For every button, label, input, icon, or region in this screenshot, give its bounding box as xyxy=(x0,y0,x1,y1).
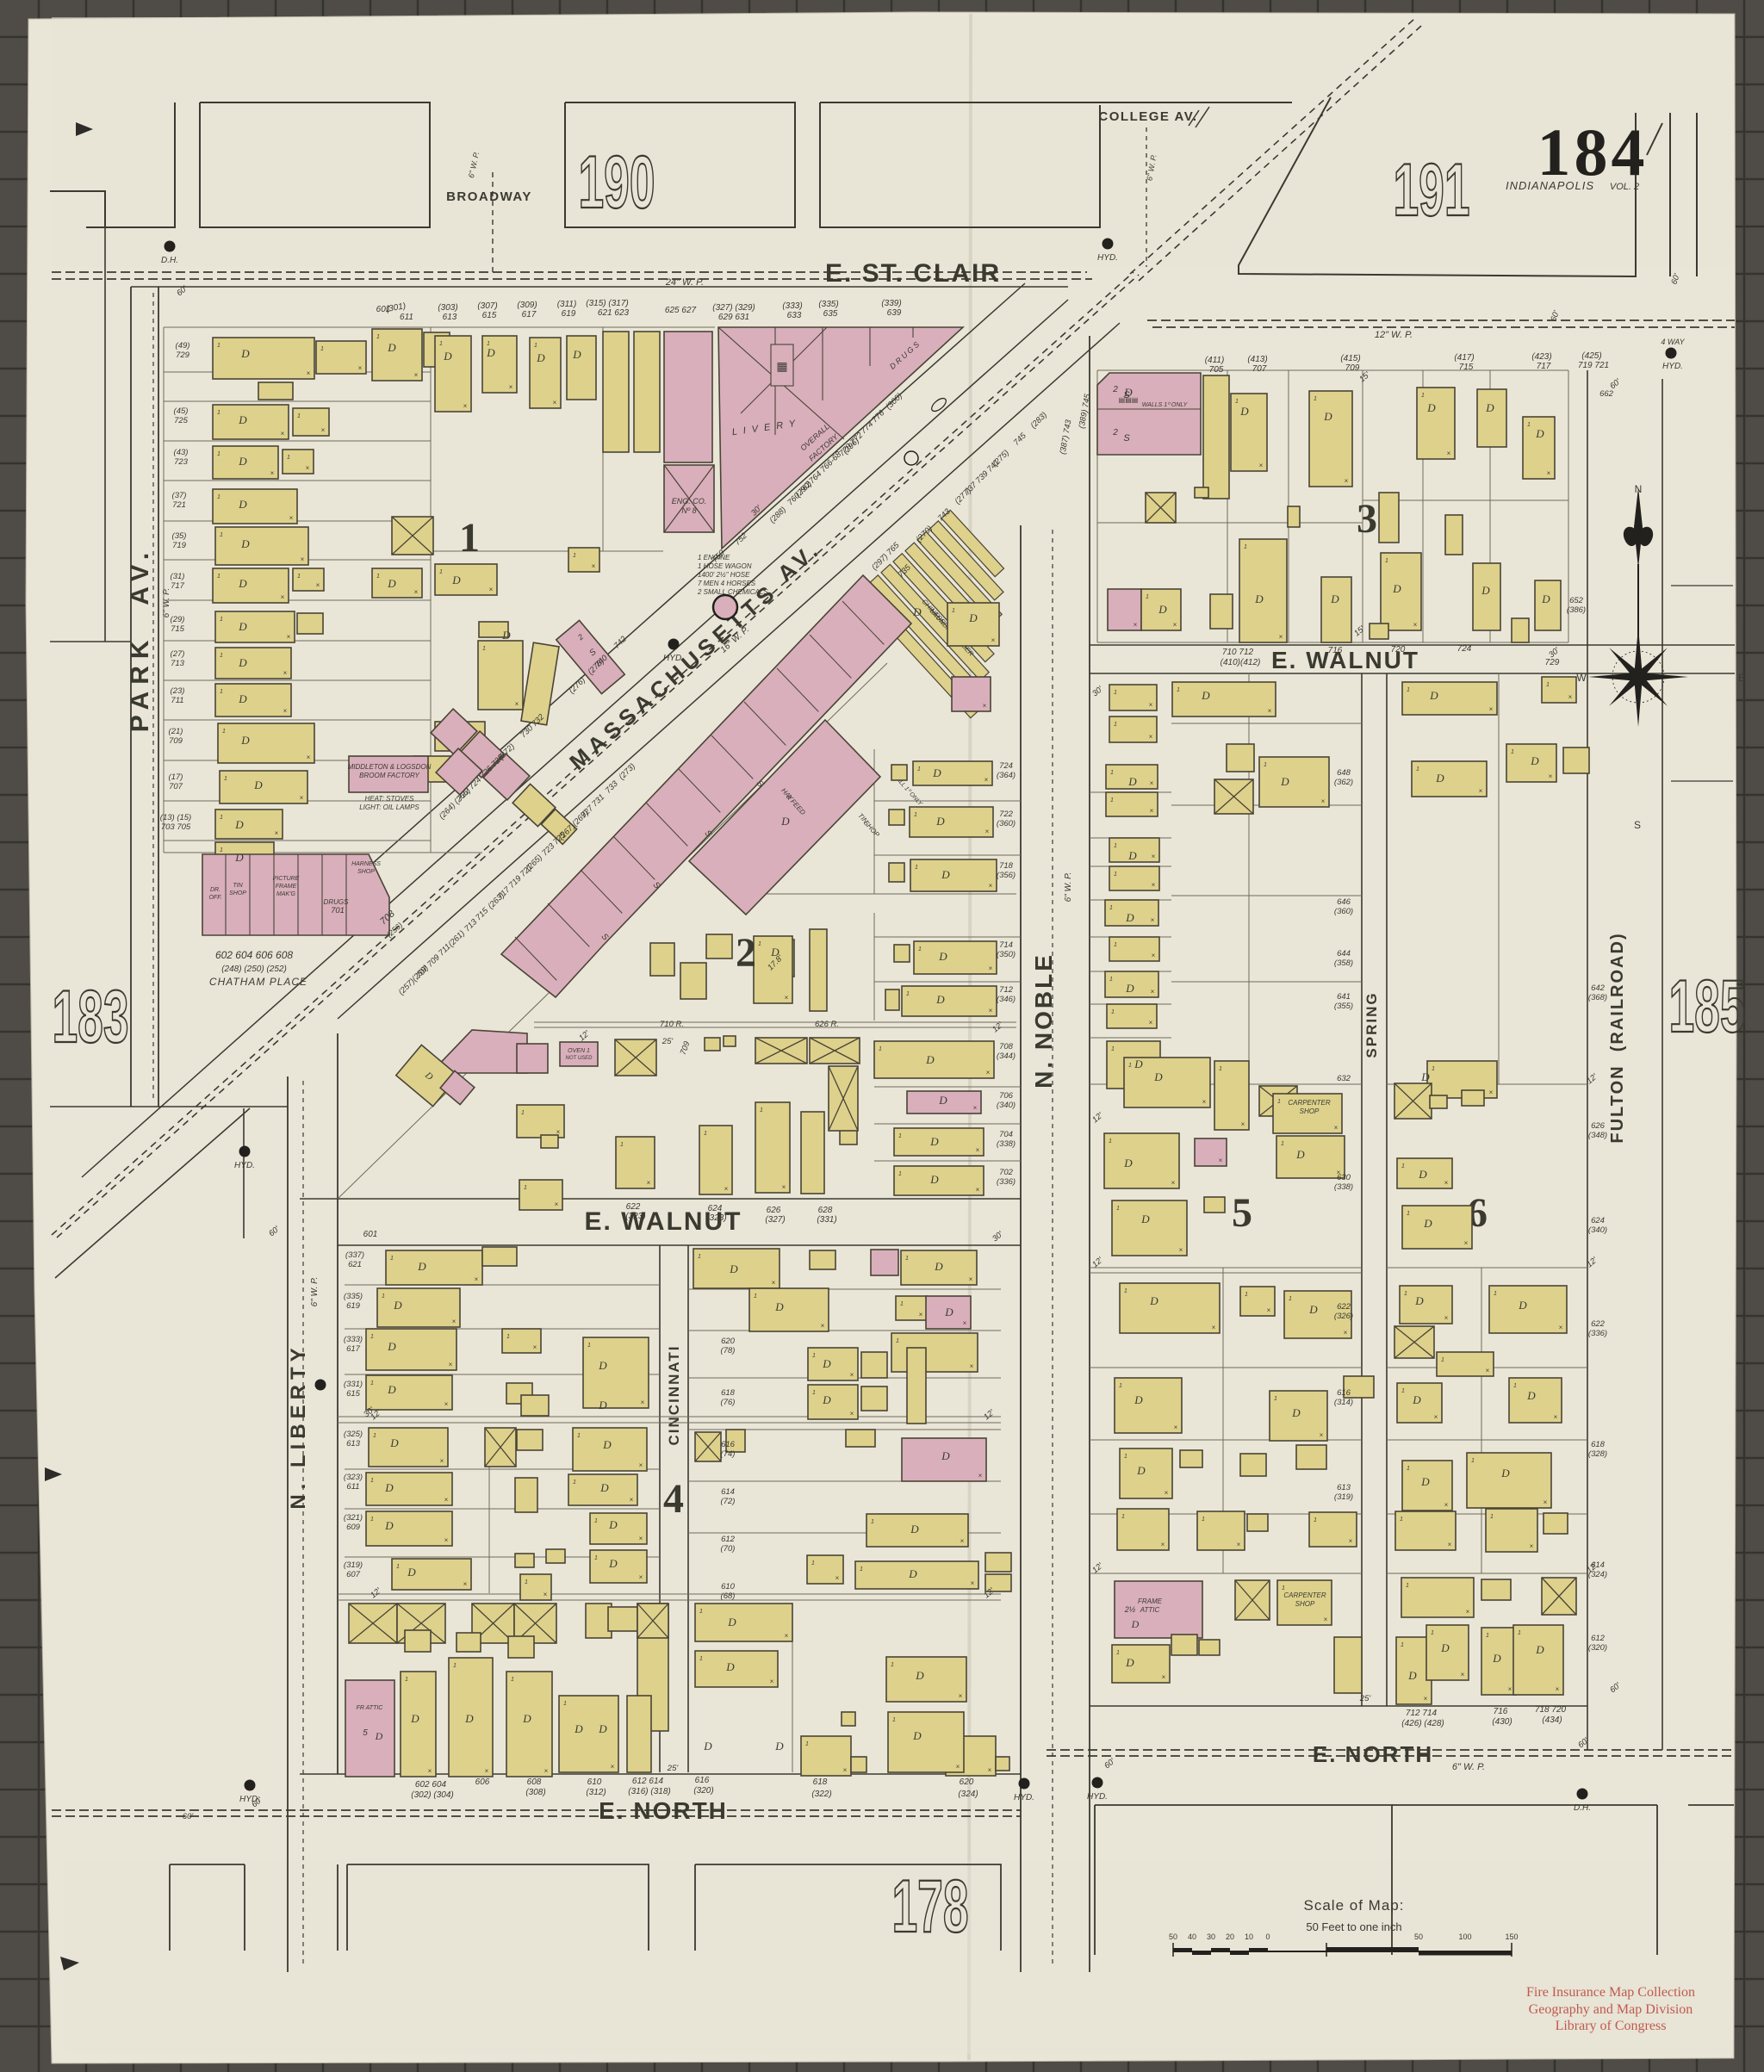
svg-text:HEAT: STOVES: HEAT: STOVES xyxy=(365,795,415,803)
svg-text:PARK AV.: PARK AV. xyxy=(126,546,154,732)
svg-text:D: D xyxy=(910,1523,919,1535)
svg-text:D: D xyxy=(238,692,247,705)
svg-text:25': 25' xyxy=(667,1764,680,1773)
svg-text:1: 1 xyxy=(952,608,955,614)
svg-text:D: D xyxy=(925,1053,935,1066)
svg-text:1: 1 xyxy=(220,617,223,623)
svg-text:(362): (362) xyxy=(1334,778,1353,787)
svg-text:1: 1 xyxy=(220,815,223,821)
svg-text:×: × xyxy=(976,1146,980,1154)
svg-text:×: × xyxy=(1547,469,1551,477)
svg-text:×: × xyxy=(1165,1489,1169,1497)
svg-text:D: D xyxy=(240,734,250,747)
svg-text:D: D xyxy=(912,605,922,618)
svg-text:(21): (21) xyxy=(169,727,183,736)
svg-text:725: 725 xyxy=(174,416,189,425)
svg-text:1: 1 xyxy=(222,729,226,735)
svg-text:×: × xyxy=(1161,1541,1165,1548)
svg-text:662: 662 xyxy=(1599,389,1614,399)
svg-text:717: 717 xyxy=(1537,362,1551,371)
svg-text:×: × xyxy=(1151,988,1155,996)
svg-text:703 705: 703 705 xyxy=(161,822,191,832)
svg-text:×: × xyxy=(485,1767,489,1775)
svg-text:1: 1 xyxy=(1406,1583,1409,1589)
svg-text:610: 610 xyxy=(587,1777,602,1787)
svg-text:1: 1 xyxy=(1527,422,1531,428)
svg-text:D: D xyxy=(464,1712,474,1725)
svg-text:2: 2 xyxy=(736,930,756,976)
svg-text:Fire Insurance Map Collection: Fire Insurance Map Collection xyxy=(1526,1985,1695,2000)
svg-text:25': 25' xyxy=(661,1037,674,1046)
svg-text:×: × xyxy=(963,1319,967,1327)
svg-text:1: 1 xyxy=(1109,977,1113,983)
svg-text:1: 1 xyxy=(1121,1514,1125,1520)
svg-text:×: × xyxy=(1173,621,1177,629)
svg-text:D: D xyxy=(501,629,511,642)
svg-text:VOL. 2: VOL. 2 xyxy=(1610,182,1639,192)
svg-text:×: × xyxy=(1549,772,1553,780)
svg-text:×: × xyxy=(1324,1616,1328,1623)
svg-text:(360): (360) xyxy=(997,819,1016,828)
svg-text:×: × xyxy=(989,882,993,890)
svg-text:×: × xyxy=(306,464,310,472)
svg-text:S: S xyxy=(1123,433,1130,444)
svg-text:(308): (308) xyxy=(525,1788,545,1797)
svg-text:622: 622 xyxy=(1591,1319,1606,1329)
svg-text:D: D xyxy=(1526,1389,1536,1402)
svg-text:D: D xyxy=(1500,1467,1510,1480)
svg-text:1: 1 xyxy=(1513,1383,1517,1389)
svg-text:×: × xyxy=(463,402,468,410)
svg-text:D: D xyxy=(935,993,945,1006)
svg-text:648: 648 xyxy=(1337,768,1351,778)
svg-text:×: × xyxy=(283,707,288,715)
svg-text:1: 1 xyxy=(915,865,918,871)
svg-text:611: 611 xyxy=(400,313,413,322)
svg-text:×: × xyxy=(1171,1179,1176,1187)
svg-text:1: 1 xyxy=(370,1334,374,1340)
svg-text:×: × xyxy=(1554,1413,1558,1421)
svg-text:D: D xyxy=(944,1306,953,1318)
svg-text:Nº 8: Nº 8 xyxy=(681,506,696,515)
svg-text:1: 1 xyxy=(405,1677,408,1683)
svg-text:D: D xyxy=(725,1660,735,1673)
svg-text:1: 1 xyxy=(805,1741,809,1747)
svg-text:HYD.: HYD. xyxy=(663,654,684,663)
svg-text:1: 1 xyxy=(1282,1585,1285,1591)
svg-text:1: 1 xyxy=(917,766,921,772)
svg-text:716: 716 xyxy=(1328,646,1343,655)
svg-text:×: × xyxy=(969,1275,973,1283)
svg-text:×: × xyxy=(1434,1413,1438,1421)
svg-text:1: 1 xyxy=(914,812,917,818)
svg-text:1: 1 xyxy=(563,1701,567,1707)
svg-text:1: 1 xyxy=(1407,1466,1410,1472)
svg-text:D: D xyxy=(1330,592,1339,605)
svg-text:1: 1 xyxy=(812,1390,816,1396)
svg-text:ENG. CO.: ENG. CO. xyxy=(672,497,707,506)
svg-text:1: 1 xyxy=(453,1663,457,1669)
svg-text:1: 1 xyxy=(594,1555,598,1561)
svg-text:712 714: 712 714 xyxy=(1406,1709,1438,1718)
svg-text:1: 1 xyxy=(220,653,223,659)
svg-text:D: D xyxy=(941,868,950,881)
svg-text:D: D xyxy=(417,1260,426,1273)
svg-text:×: × xyxy=(283,669,288,677)
svg-text:×: × xyxy=(358,364,363,372)
svg-text:1: 1 xyxy=(1401,1388,1405,1394)
svg-text:612 614: 612 614 xyxy=(632,1777,664,1786)
svg-text:D: D xyxy=(1131,1618,1140,1630)
svg-text:1: 1 xyxy=(1511,749,1514,755)
svg-text:×: × xyxy=(1162,1673,1166,1681)
svg-text:CHATHAM PLACE: CHATHAM PLACE xyxy=(209,976,307,988)
svg-text:710 R.: 710 R. xyxy=(660,1020,684,1029)
svg-text:1: 1 xyxy=(217,343,220,349)
svg-text:D: D xyxy=(1149,1294,1158,1307)
svg-text:1: 1 xyxy=(1385,558,1388,564)
svg-text:1: 1 xyxy=(1114,942,1117,948)
svg-text:(322): (322) xyxy=(811,1790,831,1799)
svg-text:D: D xyxy=(238,620,247,633)
svg-text:×: × xyxy=(1149,701,1153,709)
svg-text:(346): (346) xyxy=(997,995,1016,1004)
svg-text:×: × xyxy=(301,555,305,563)
svg-text:710 712: 710 712 xyxy=(1222,648,1254,657)
svg-text:707: 707 xyxy=(169,782,183,791)
svg-text:NOT USED: NOT USED xyxy=(565,1056,593,1061)
svg-text:1: 1 xyxy=(896,1338,899,1344)
svg-text:D: D xyxy=(389,1436,399,1449)
svg-text:D: D xyxy=(938,1094,947,1107)
svg-text:(386): (386) xyxy=(1567,605,1586,615)
svg-text:CARPENTER: CARPENTER xyxy=(1283,1591,1326,1599)
svg-text:1: 1 xyxy=(1202,1517,1205,1523)
svg-text:D: D xyxy=(522,1712,531,1725)
svg-text:1: 1 xyxy=(1546,682,1550,688)
svg-text:×: × xyxy=(641,1399,645,1406)
svg-text:×: × xyxy=(959,1692,963,1700)
svg-text:624: 624 xyxy=(1591,1216,1605,1225)
svg-text:D: D xyxy=(1295,1148,1305,1161)
svg-text:×: × xyxy=(281,593,285,601)
svg-text:WALLS 1⁰ ONLY: WALLS 1⁰ ONLY xyxy=(1142,401,1189,408)
svg-text:×: × xyxy=(1149,733,1153,741)
svg-text:D: D xyxy=(393,1299,402,1312)
svg-text:D: D xyxy=(384,1519,394,1532)
svg-text:1: 1 xyxy=(1114,690,1117,696)
svg-text:×: × xyxy=(1466,1608,1470,1616)
svg-text:619: 619 xyxy=(346,1301,361,1311)
svg-text:(415): (415) xyxy=(1340,354,1360,363)
svg-text:×: × xyxy=(772,1279,776,1287)
svg-text:191: 191 xyxy=(1394,149,1470,232)
svg-text:608: 608 xyxy=(527,1777,542,1787)
svg-text:D: D xyxy=(1134,1058,1143,1070)
svg-text:1: 1 xyxy=(760,1107,763,1114)
svg-text:D: D xyxy=(1440,1641,1450,1654)
svg-text:FRAME: FRAME xyxy=(276,884,297,890)
svg-text:D: D xyxy=(729,1262,738,1275)
svg-text:1: 1 xyxy=(871,1519,874,1525)
svg-text:50: 50 xyxy=(1169,1932,1177,1941)
svg-text:×: × xyxy=(1461,1671,1465,1678)
svg-text:(307): (307) xyxy=(477,301,497,311)
svg-text:×: × xyxy=(782,1183,786,1191)
svg-text:1: 1 xyxy=(1109,905,1113,911)
svg-text:100: 100 xyxy=(1458,1932,1471,1941)
svg-text:×: × xyxy=(1219,1157,1223,1164)
svg-text:1: 1 xyxy=(573,1480,576,1486)
svg-text:722: 722 xyxy=(999,810,1014,819)
svg-text:625 627: 625 627 xyxy=(665,306,697,315)
svg-text:×: × xyxy=(971,1579,975,1587)
svg-text:(410)(412): (410)(412) xyxy=(1221,658,1261,667)
svg-text:1: 1 xyxy=(217,574,220,580)
svg-text:×: × xyxy=(985,828,990,835)
svg-text:×: × xyxy=(1489,705,1494,713)
svg-text:(323): (323) xyxy=(344,1473,363,1482)
svg-text:D: D xyxy=(968,611,978,624)
svg-text:(333): (333) xyxy=(344,1335,363,1344)
svg-text:1: 1 xyxy=(879,1046,882,1052)
svg-text:E. ST. CLAIR: E. ST. CLAIR xyxy=(825,259,1001,288)
svg-text:D: D xyxy=(238,413,247,426)
svg-text:715: 715 xyxy=(1459,363,1474,372)
svg-text:(434): (434) xyxy=(1542,1715,1562,1725)
svg-text:1: 1 xyxy=(1111,1046,1115,1052)
svg-text:707: 707 xyxy=(1252,364,1267,374)
svg-text:D: D xyxy=(1412,1393,1421,1406)
svg-text:1: 1 xyxy=(1404,1291,1407,1297)
svg-text:×: × xyxy=(1267,1306,1271,1314)
svg-text:(328): (328) xyxy=(1588,1449,1607,1459)
svg-text:606: 606 xyxy=(475,1777,490,1787)
svg-text:60': 60' xyxy=(183,1812,195,1821)
svg-text:D: D xyxy=(387,1383,396,1396)
svg-text:615: 615 xyxy=(346,1389,361,1399)
svg-text:D: D xyxy=(780,815,790,828)
svg-text:×: × xyxy=(1151,916,1155,924)
svg-text:(315) (317): (315) (317) xyxy=(586,299,628,308)
svg-text:(78): (78) xyxy=(721,1346,736,1355)
svg-text:(368): (368) xyxy=(1588,993,1607,1002)
svg-text:×: × xyxy=(1259,462,1264,469)
svg-text:D: D xyxy=(238,498,247,511)
svg-text:D: D xyxy=(1420,1475,1430,1488)
svg-text:Library of Congress: Library of Congress xyxy=(1556,2019,1667,2033)
svg-text:D: D xyxy=(770,946,780,958)
svg-text:×: × xyxy=(592,562,596,570)
svg-text:(340): (340) xyxy=(1588,1225,1607,1235)
svg-text:1: 1 xyxy=(1494,1291,1497,1297)
svg-text:×: × xyxy=(275,829,279,837)
svg-text:708: 708 xyxy=(999,1042,1014,1052)
svg-text:1: 1 xyxy=(898,1133,902,1139)
svg-text:(360): (360) xyxy=(1334,907,1353,916)
svg-text:×: × xyxy=(307,369,311,377)
svg-text:1: 1 xyxy=(220,689,223,695)
svg-text:1: 1 xyxy=(320,346,324,352)
svg-text:(344): (344) xyxy=(997,1052,1016,1061)
svg-text:2: 2 xyxy=(1112,385,1118,394)
svg-text:607: 607 xyxy=(346,1570,361,1579)
svg-text:626 R.: 626 R. xyxy=(815,1020,839,1029)
svg-text:SHOP: SHOP xyxy=(357,869,375,875)
svg-text:×: × xyxy=(1447,450,1451,457)
svg-text:×: × xyxy=(1489,1089,1494,1096)
svg-text:178: 178 xyxy=(892,1865,969,1948)
svg-text:(327) (329): (327) (329) xyxy=(712,303,755,313)
svg-text:622: 622 xyxy=(626,1202,641,1212)
svg-text:×: × xyxy=(289,514,294,522)
svg-text:D: D xyxy=(234,851,244,864)
svg-text:×: × xyxy=(444,1400,449,1408)
svg-text:1: 1 xyxy=(1421,393,1425,399)
svg-text:×: × xyxy=(989,1007,993,1014)
svg-text:×: × xyxy=(543,1591,548,1598)
svg-text:D: D xyxy=(1485,401,1494,414)
svg-text:×: × xyxy=(785,1632,789,1640)
svg-text:×: × xyxy=(850,1371,854,1379)
svg-text:D: D xyxy=(1481,584,1490,597)
svg-text:D: D xyxy=(908,1567,917,1580)
svg-text:ATTIC: ATTIC xyxy=(1140,1606,1160,1614)
svg-text:N. LIBERTY: N. LIBERTY xyxy=(287,1343,310,1509)
svg-text:1: 1 xyxy=(1111,1009,1115,1015)
svg-text:W: W xyxy=(1576,672,1587,684)
svg-text:(314): (314) xyxy=(1334,1398,1353,1407)
svg-text:185: 185 xyxy=(1669,965,1746,1048)
svg-text:1: 1 xyxy=(525,1579,528,1585)
svg-text:×: × xyxy=(1334,1124,1339,1132)
svg-text:618: 618 xyxy=(1591,1440,1606,1449)
svg-text:719 721: 719 721 xyxy=(1578,361,1609,370)
svg-text:D: D xyxy=(1125,982,1134,995)
svg-text:D: D xyxy=(1254,592,1264,605)
svg-text:1: 1 xyxy=(1116,1650,1120,1656)
svg-text:SHOP: SHOP xyxy=(229,890,246,896)
svg-text:1: 1 xyxy=(754,1293,757,1300)
svg-text:702: 702 xyxy=(999,1168,1014,1177)
svg-text:1: 1 xyxy=(297,413,301,419)
svg-text:616: 616 xyxy=(1337,1388,1351,1398)
svg-text:(358): (358) xyxy=(1334,958,1353,968)
svg-text:1: 1 xyxy=(459,515,480,561)
svg-text:×: × xyxy=(449,1361,453,1368)
svg-text:×: × xyxy=(1424,1695,1428,1703)
svg-text:×: × xyxy=(1149,1019,1153,1027)
svg-text:1: 1 xyxy=(1407,687,1410,693)
svg-text:1400' 2½" HOSE: 1400' 2½" HOSE xyxy=(698,571,750,579)
svg-text:(430): (430) xyxy=(1492,1717,1512,1727)
svg-text:BROADWAY: BROADWAY xyxy=(446,189,532,204)
svg-text:D: D xyxy=(1426,401,1436,414)
svg-text:614: 614 xyxy=(721,1487,735,1497)
svg-text:(316) (318): (316) (318) xyxy=(628,1787,670,1796)
svg-text:×: × xyxy=(553,399,557,406)
svg-text:718 720: 718 720 xyxy=(1535,1705,1567,1715)
svg-text:2½: 2½ xyxy=(1124,1605,1136,1614)
svg-text:(335): (335) xyxy=(818,300,838,309)
svg-text:(23): (23) xyxy=(171,686,185,696)
svg-text:D: D xyxy=(929,1135,939,1148)
svg-text:(311): (311) xyxy=(557,300,577,309)
svg-text:D: D xyxy=(387,1340,396,1353)
svg-text:×: × xyxy=(321,426,326,434)
svg-text:620: 620 xyxy=(960,1777,974,1787)
svg-text:(248) (250) (252): (248) (250) (252) xyxy=(221,965,287,974)
svg-text:D: D xyxy=(602,1438,612,1451)
svg-text:×: × xyxy=(489,586,494,593)
svg-text:D: D xyxy=(822,1357,831,1370)
svg-text:1: 1 xyxy=(1400,1517,1403,1523)
svg-text:612: 612 xyxy=(721,1535,736,1544)
svg-text:1: 1 xyxy=(1471,1458,1475,1464)
svg-text:D: D xyxy=(410,1712,419,1725)
svg-text:(323): (323) xyxy=(706,1213,726,1223)
svg-text:50: 50 xyxy=(1414,1932,1423,1941)
svg-text:×: × xyxy=(956,1763,960,1771)
svg-text:(338): (338) xyxy=(997,1139,1016,1149)
svg-text:×: × xyxy=(1212,1324,1216,1331)
svg-text:6" W. P.: 6" W. P. xyxy=(310,1277,320,1307)
svg-text:OFF.: OFF. xyxy=(208,895,221,901)
svg-text:1: 1 xyxy=(906,991,910,997)
svg-text:×: × xyxy=(544,1767,549,1775)
svg-text:1: 1 xyxy=(370,1478,374,1484)
svg-text:D: D xyxy=(608,1557,618,1570)
svg-text:(17): (17) xyxy=(169,772,183,782)
svg-text:2 SMALL CHEMICALS: 2 SMALL CHEMICALS xyxy=(697,588,768,596)
svg-text:D.H.: D.H. xyxy=(1574,1803,1591,1813)
svg-text:×: × xyxy=(976,1186,980,1194)
svg-text:×: × xyxy=(1556,1685,1560,1693)
svg-text:613: 613 xyxy=(443,313,457,322)
svg-text:(320): (320) xyxy=(693,1786,713,1796)
svg-text:(49): (49) xyxy=(176,341,190,351)
svg-text:612: 612 xyxy=(1591,1634,1606,1643)
svg-text:×: × xyxy=(287,633,291,641)
svg-text:1: 1 xyxy=(905,1256,909,1262)
svg-text:PICTURE: PICTURE xyxy=(273,876,300,882)
svg-text:1: 1 xyxy=(382,1293,385,1300)
svg-text:D: D xyxy=(1136,1464,1146,1477)
svg-text:1: 1 xyxy=(297,574,301,580)
svg-text:×: × xyxy=(1448,1541,1452,1548)
svg-text:DRUGS: DRUGS xyxy=(324,898,350,906)
svg-text:1: 1 xyxy=(220,847,223,853)
svg-text:(312): (312) xyxy=(586,1788,606,1797)
svg-text:1: 1 xyxy=(217,494,220,500)
svg-text:639: 639 xyxy=(887,308,902,318)
svg-text:709: 709 xyxy=(169,736,183,746)
svg-text:1: 1 xyxy=(1146,594,1149,600)
svg-text:1: 1 xyxy=(1110,770,1114,776)
svg-text:624: 624 xyxy=(708,1204,723,1213)
svg-text:40: 40 xyxy=(1188,1932,1196,1941)
svg-text:1: 1 xyxy=(1244,544,1247,550)
svg-text:×: × xyxy=(414,588,419,596)
svg-text:602 604 606 608: 602 604 606 608 xyxy=(215,949,293,961)
svg-text:1: 1 xyxy=(1116,1206,1120,1212)
svg-text:717: 717 xyxy=(171,581,185,591)
svg-text:1: 1 xyxy=(217,451,220,457)
svg-text:(335): (335) xyxy=(344,1292,363,1301)
svg-text:1: 1 xyxy=(1219,1066,1222,1072)
svg-text:1: 1 xyxy=(594,1518,598,1524)
svg-text:4 WAY: 4 WAY xyxy=(1661,338,1685,346)
